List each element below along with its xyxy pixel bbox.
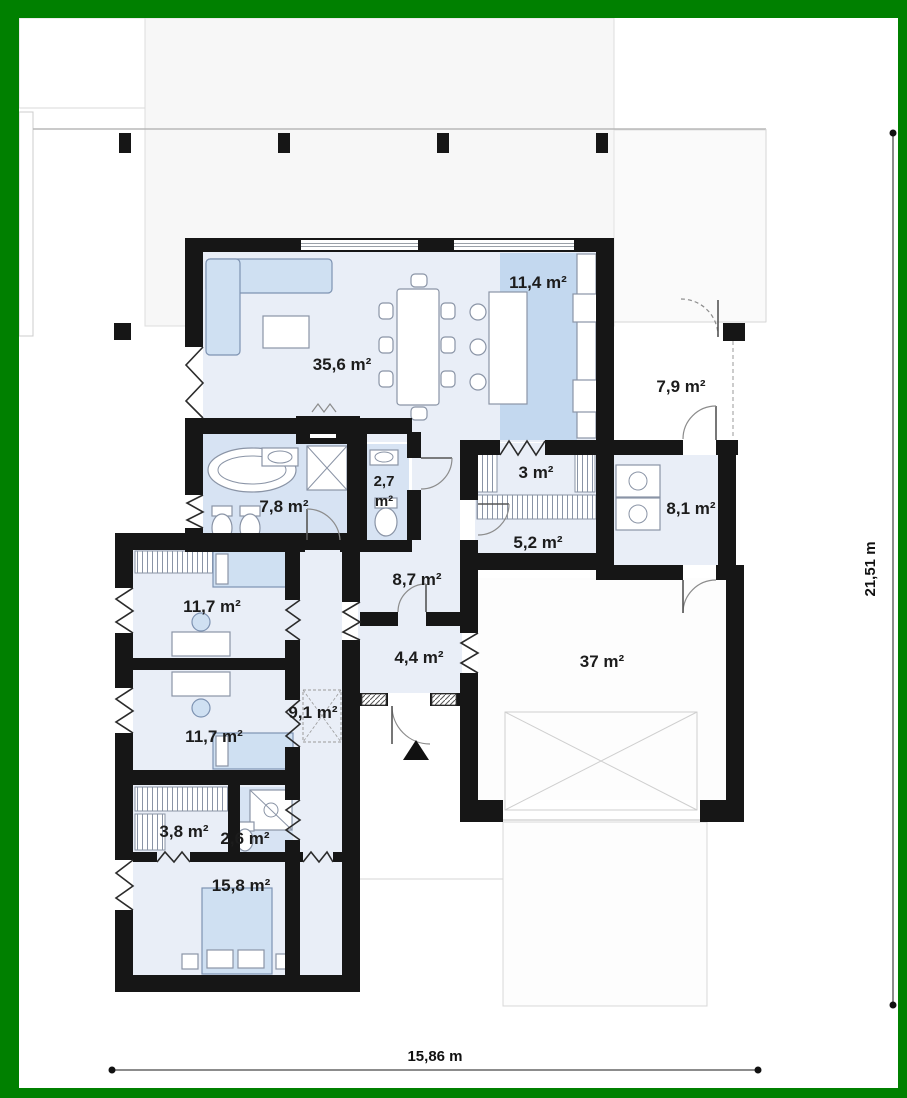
washing-machine — [616, 465, 660, 497]
dimension-dot — [755, 1067, 762, 1074]
room-label-bedroom-1: 11,7 m² — [183, 597, 241, 616]
room-label-porch: 7,9 m² — [656, 377, 705, 396]
terrace-door-opening — [186, 347, 203, 418]
hallway-opening — [343, 602, 360, 640]
pillar-icon — [114, 323, 131, 340]
room-label-bathroom: 7,8 m² — [259, 497, 308, 516]
dimension-dot — [890, 130, 897, 137]
bar-stools — [470, 304, 486, 390]
room-label-living-dining: 35,6 m² — [313, 355, 372, 374]
cooktop — [573, 380, 598, 412]
window — [454, 240, 574, 250]
room-label-wardrobe-hall: 5,2 m² — [513, 533, 562, 552]
desk-bedroom-1 — [172, 632, 230, 656]
room-label-shower-room: 2,6 m² — [220, 829, 269, 848]
pillar-icon — [723, 323, 745, 341]
tv-cabinet — [263, 316, 309, 348]
width-dimension-label: 15,86 m — [407, 1048, 462, 1065]
kitchen-island — [489, 292, 527, 404]
room-label-master-bedroom: 15,8 m² — [212, 876, 271, 895]
room-label-entrance-hall: 8,1 m² — [666, 499, 715, 518]
main-entrance-arrow-icon — [403, 740, 429, 760]
desk-chair — [192, 699, 210, 717]
bedroom-window-opening — [116, 588, 133, 633]
bedroom-window-opening — [116, 860, 133, 910]
room-label-vestibule: 4,4 m² — [394, 648, 443, 667]
wardrobe-shelves — [135, 787, 233, 811]
pillar-icon — [437, 133, 449, 153]
room-label-toilet-line2: m² — [375, 493, 393, 510]
room-label-garage: 37 m² — [580, 652, 625, 671]
room-garage — [478, 578, 726, 800]
room-label-pantry: 3 m² — [519, 463, 554, 482]
wc-toilet-bowl — [375, 508, 397, 536]
main-entrance-door-arc — [392, 706, 430, 744]
entrance-door-arc — [683, 406, 716, 439]
terrace-area-right — [614, 130, 766, 322]
dimension-dot — [109, 1067, 116, 1074]
vestibule-garage-opening — [461, 633, 478, 673]
pillow — [216, 554, 228, 584]
height-dimension-label: 21,51 m — [862, 541, 879, 596]
nightstand — [182, 954, 198, 969]
pillar-icon — [278, 133, 290, 153]
entrance-pier — [362, 694, 386, 705]
kitchen-sink — [573, 294, 598, 322]
room-label-hallway: 9,1 m² — [288, 703, 337, 722]
room-label-toilet-line1: 2,7 — [374, 473, 395, 490]
pillar-icon — [119, 133, 131, 153]
pillar-icon — [596, 133, 608, 153]
pillow — [207, 950, 233, 968]
room-label-bedroom-2: 11,7 m² — [185, 727, 243, 746]
hall-wardrobe — [477, 495, 596, 519]
corner-sofa — [206, 259, 240, 355]
bedroom-window-opening — [116, 688, 133, 733]
dryer — [616, 498, 660, 530]
dining-table — [397, 289, 439, 405]
bathroom-window-opening — [187, 495, 203, 528]
room-label-corridor: 8,7 m² — [392, 570, 441, 589]
pillow — [238, 950, 264, 968]
entrance-pier — [432, 694, 456, 705]
floor-plan-page: 35,6 m² 11,4 m² 7,9 m² 3 m² 2,7 m² 7,8 m… — [0, 0, 907, 1098]
site-strip-left — [19, 112, 33, 336]
room-label-kitchen: 11,4 m² — [509, 273, 567, 292]
window — [301, 240, 418, 250]
wardrobe-bedroom-1 — [135, 551, 217, 573]
driveway — [503, 822, 707, 1006]
dimension-dot — [890, 1002, 897, 1009]
desk-bedroom-2 — [172, 672, 230, 696]
room-label-wardrobe: 3,8 m² — [159, 822, 208, 841]
floor-plan-canvas: 35,6 m² 11,4 m² 7,9 m² 3 m² 2,7 m² 7,8 m… — [0, 0, 907, 1098]
